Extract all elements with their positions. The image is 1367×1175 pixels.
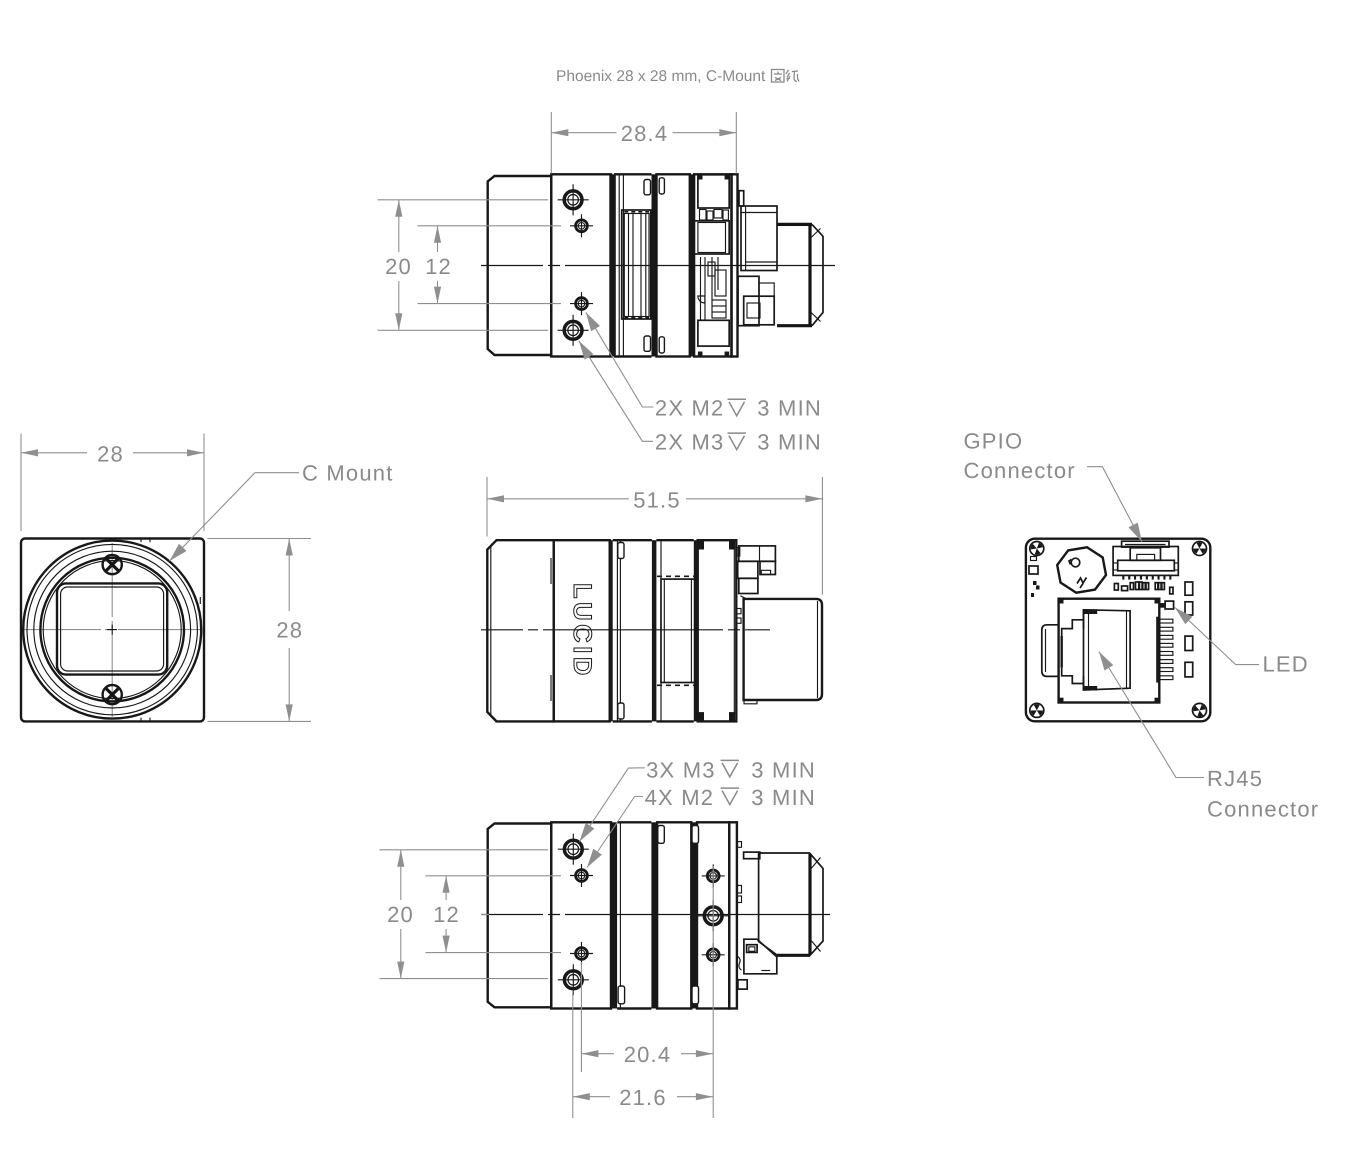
svg-text:20: 20 bbox=[385, 254, 412, 279]
svg-text:4X M2: 4X M2 bbox=[645, 785, 715, 810]
svg-text:RJ45: RJ45 bbox=[1207, 766, 1263, 791]
svg-text:2X M3: 2X M3 bbox=[655, 429, 725, 454]
svg-text:3 MIN: 3 MIN bbox=[757, 429, 822, 454]
svg-text:20.4: 20.4 bbox=[624, 1042, 672, 1067]
svg-text:Connector: Connector bbox=[1207, 796, 1319, 821]
svg-text:Phoenix 28 x 28 mm, C-Mount: Phoenix 28 x 28 mm, C-Mount bbox=[556, 68, 766, 85]
svg-text:3 MIN: 3 MIN bbox=[751, 785, 816, 810]
svg-text:C Mount: C Mount bbox=[302, 461, 394, 486]
svg-text:GPIO: GPIO bbox=[964, 428, 1024, 453]
svg-text:21.6: 21.6 bbox=[619, 1085, 667, 1110]
svg-text:2X M2: 2X M2 bbox=[655, 396, 725, 421]
svg-text:28.4: 28.4 bbox=[621, 121, 669, 146]
svg-text:28: 28 bbox=[276, 618, 303, 643]
svg-text:51.5: 51.5 bbox=[633, 487, 681, 512]
svg-text:12: 12 bbox=[433, 902, 460, 927]
svg-text:LED: LED bbox=[1263, 652, 1309, 677]
svg-text:3 MIN: 3 MIN bbox=[751, 757, 816, 782]
svg-text:20: 20 bbox=[387, 902, 414, 927]
svg-text:12: 12 bbox=[425, 254, 452, 279]
svg-text:28: 28 bbox=[97, 441, 124, 466]
svg-text:3X M3: 3X M3 bbox=[646, 757, 716, 782]
svg-text:Connector: Connector bbox=[964, 458, 1076, 483]
svg-text:3 MIN: 3 MIN bbox=[757, 396, 822, 421]
svg-text:LUCID: LUCID bbox=[568, 583, 596, 679]
